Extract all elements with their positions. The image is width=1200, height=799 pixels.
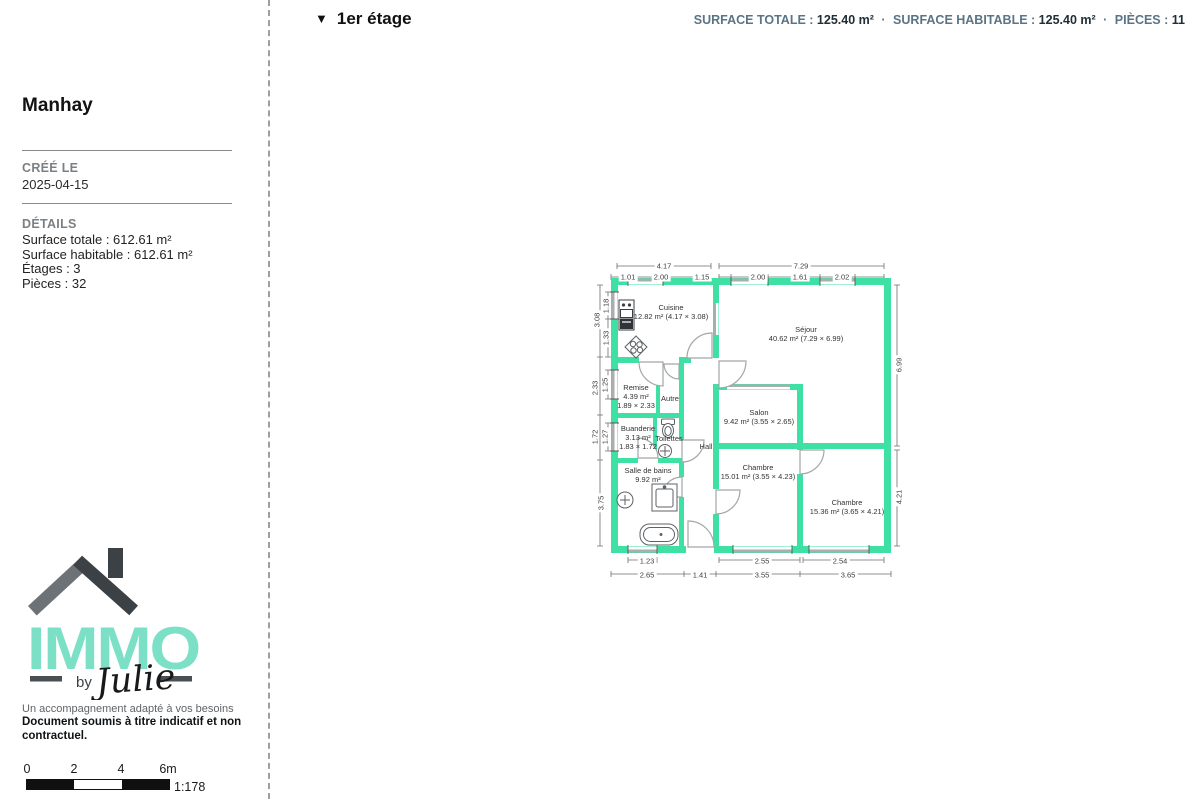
stat-separator: · (1103, 13, 1107, 27)
dimension-label: 2.54 (831, 557, 850, 566)
dimension-label: 1.33 (602, 329, 611, 348)
logo-by-text: by (76, 674, 92, 691)
dimension-label: 1.27 (601, 428, 610, 447)
stat-separator: · (881, 13, 885, 27)
room-label-salle-de-bains: Salle de bains 9.92 m² (624, 466, 671, 484)
agency-logo: IMMO by Julie (18, 548, 208, 700)
dimension-label: 1.15 (693, 273, 712, 282)
dimension-label: 2.33 (591, 379, 600, 398)
room-label-toilettes: Toilettes (655, 434, 683, 443)
divider (22, 203, 232, 204)
surface-totale-label: SURFACE TOTALE : (694, 13, 814, 27)
hob-icon (625, 336, 647, 358)
scale-segment (122, 780, 169, 789)
room-label-chambre-1: Chambre 15.01 m² (3.55 × 4.23) (721, 463, 795, 481)
logo-dash-left (30, 676, 62, 682)
dimension-label: 2.02 (833, 273, 852, 282)
door-cuisine (687, 333, 712, 358)
scale-segment (27, 780, 74, 789)
surface-habitable-value: 125.40 m² (1039, 13, 1096, 27)
dimension-label: 1.41 (691, 571, 710, 580)
scale-tick-0: 0 (24, 762, 31, 776)
legal-disclaimer: Document soumis à titre indicatif et non… (22, 716, 252, 743)
project-title: Manhay (22, 95, 93, 117)
dimension-label: 3.75 (597, 494, 606, 513)
dimension-label: 2.00 (749, 273, 768, 282)
dimension-label: 1.25 (601, 376, 610, 395)
dimension-label: 1.18 (602, 297, 611, 316)
surface-habitable-label: SURFACE HABITABLE : (893, 13, 1035, 27)
bathtub-icon (640, 524, 678, 545)
dimension-label: 3.65 (839, 571, 858, 580)
basin-icon (659, 445, 672, 458)
scale-tick-6m: 6m (159, 762, 176, 776)
dimension-label: 3.55 (753, 571, 772, 580)
door-chambre-1 (716, 490, 740, 514)
room-label-salon: Salon 9.42 m² (3.55 × 2.65) (724, 408, 794, 426)
created-label: CRÉÉ LE (22, 161, 78, 175)
details-list: Surface totale : 612.61 m² Surface habit… (22, 233, 193, 291)
dimension-label: 3.08 (593, 311, 602, 330)
door-chambre-2 (800, 450, 824, 474)
divider (22, 150, 232, 151)
sink-icon (652, 484, 677, 511)
detail-etages: Étages : 3 (22, 262, 193, 277)
surface-stats: SURFACE TOTALE : 125.40 m² · SURFACE HAB… (694, 13, 1185, 27)
room-label-hall: Hall (700, 442, 713, 451)
floor-title: 1er étage (337, 9, 412, 29)
dimension-label: 2.00 (652, 273, 671, 282)
sidebar: Manhay CRÉÉ LE 2025-04-15 DÉTAILS Surfac… (0, 0, 268, 799)
dimension-label: 1.72 (591, 428, 600, 447)
floor-section-header[interactable]: ▼ 1er étage (315, 8, 412, 30)
created-date: 2025-04-15 (22, 177, 89, 192)
agency-tagline: Un accompagnement adapté à vos besoins (22, 703, 257, 715)
dimension-label: 4.21 (895, 488, 904, 507)
room-label-autre: Autre (661, 394, 679, 403)
dimension-label: 1.01 (619, 273, 638, 282)
stove-icon (619, 300, 634, 330)
detail-pieces: Pièces : 32 (22, 277, 193, 292)
dimension-label: 1.61 (791, 273, 810, 282)
room-label-cuisine: Cuisine 12.82 m² (4.17 × 3.08) (634, 303, 708, 321)
dimension-label: 2.65 (638, 571, 657, 580)
detail-surface-totale: Surface totale : 612.61 m² (22, 233, 193, 248)
room-label-buanderie: Buanderie 3.13 m² 1.83 × 1.72 (619, 424, 657, 451)
shower-icon (617, 492, 633, 508)
scale-tick-2: 2 (71, 762, 78, 776)
door-autre (664, 364, 679, 379)
details-label: DÉTAILS (22, 217, 77, 231)
sidebar-divider (268, 0, 270, 799)
fixtures (617, 300, 678, 545)
dimension-label: 1.23 (638, 557, 657, 566)
pieces-label: PIÈCES : (1115, 13, 1169, 27)
door-entrance (688, 521, 714, 547)
room-label-remise: Remise 4.39 m² 1.89 × 2.33 (617, 383, 655, 410)
scale-tick-4: 4 (118, 762, 125, 776)
dimension-label: 4.17 (655, 262, 674, 271)
logo-chimney (108, 548, 123, 578)
pieces-value: 11 (1172, 13, 1185, 27)
collapse-triangle-icon[interactable]: ▼ (315, 8, 328, 30)
dimension-label: 2.55 (753, 557, 772, 566)
logo-roof-right (73, 556, 138, 616)
detail-surface-habitable: Surface habitable : 612.61 m² (22, 248, 193, 263)
scale-bar (26, 779, 170, 790)
scale-ratio: 1:178 (174, 780, 205, 794)
dimension-label: 7.29 (792, 262, 811, 271)
room-label-sejour: Séjour 40.62 m² (7.29 × 6.99) (769, 325, 843, 343)
dimension-label: 6.99 (895, 356, 904, 375)
logo-name-text: Julie (88, 657, 176, 700)
surface-totale-value: 125.40 m² (817, 13, 874, 27)
scale-segment (74, 780, 121, 789)
room-label-chambre-2: Chambre 15.36 m² (3.65 × 4.21) (810, 498, 884, 516)
door-sejour (719, 361, 746, 388)
